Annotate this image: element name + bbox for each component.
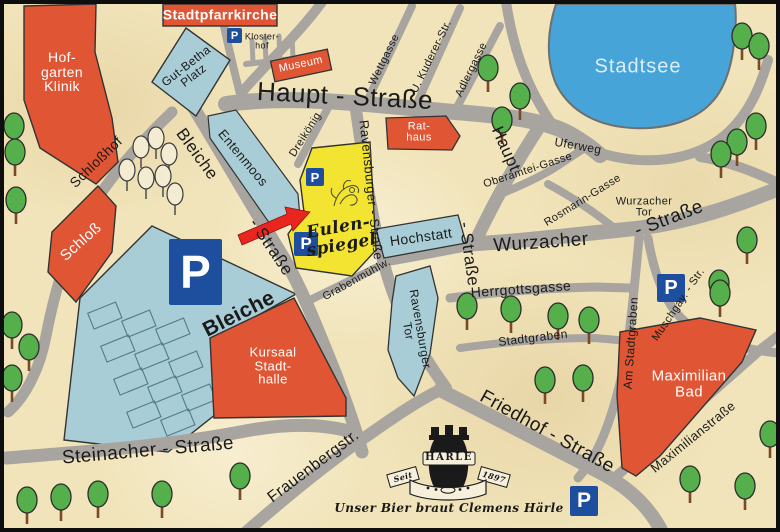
haerle-slogan-label: Unser Bier braut Clemens Härle <box>334 502 563 514</box>
kursaal-label: Kursaal Stadt- halle <box>250 346 297 387</box>
rathaus-label: Rat- haus <box>406 122 431 145</box>
parking-icon-eulenspiegel-north: P <box>306 168 324 186</box>
hofgarten-klinik-label: Hof- garten Klinik <box>41 50 83 94</box>
stadtsee-label: Stadtsee <box>595 57 682 78</box>
parking-icon-klosterhof: P <box>227 28 242 43</box>
outlined-trees <box>119 127 183 215</box>
maximilian-bad-label: Maximilian Bad <box>652 368 727 399</box>
haerle-name-label: HÄRLE <box>425 453 473 463</box>
parking-icon-friedhof: P <box>570 486 598 516</box>
klosterhof-label: Kloster- hof <box>245 33 279 52</box>
stadtpfarrkirche-label: Stadtpfarrkirche <box>163 8 278 23</box>
city-map: P P P P P P Stadtpfarrkirche Hof- garten… <box>0 0 780 532</box>
parking-icon-bleiche: P <box>169 239 222 305</box>
